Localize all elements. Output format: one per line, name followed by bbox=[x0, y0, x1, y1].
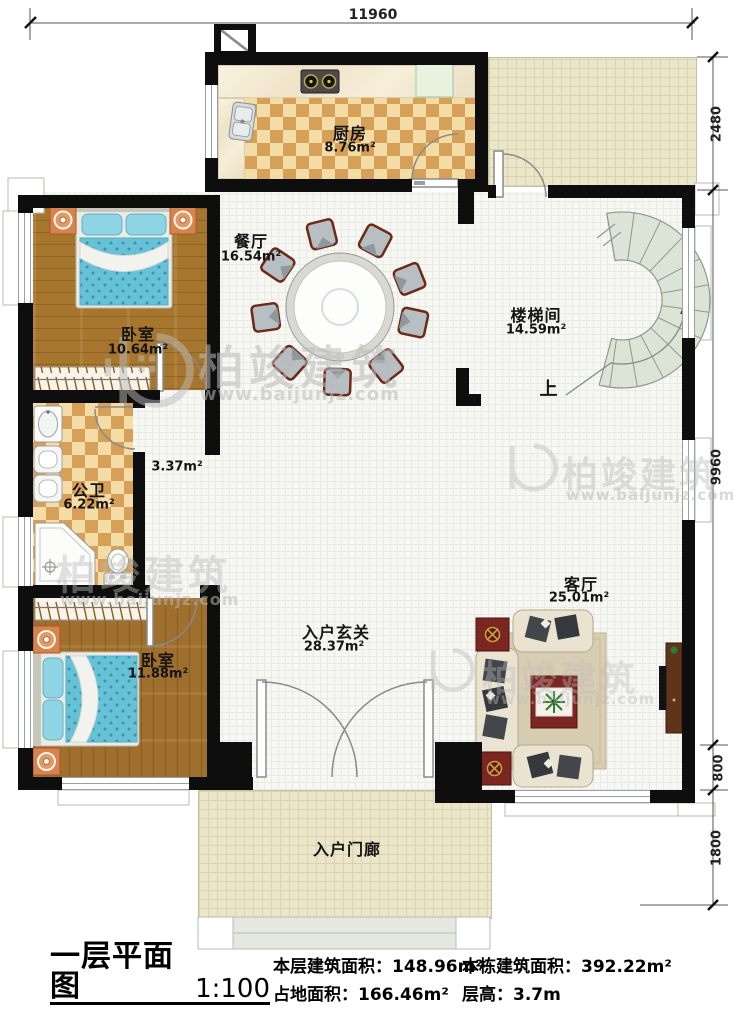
wall bbox=[475, 52, 488, 192]
porch-steps bbox=[233, 917, 456, 949]
dim-right-3: 800 bbox=[712, 754, 727, 781]
sofa-top bbox=[513, 610, 593, 652]
bathroom-cabinets bbox=[34, 446, 62, 502]
window bbox=[682, 228, 695, 338]
bedroom2-door bbox=[147, 598, 197, 646]
bathroom-sink bbox=[34, 406, 62, 442]
wall bbox=[205, 52, 218, 85]
wall bbox=[207, 195, 220, 390]
tv-cabinet bbox=[659, 643, 682, 733]
stat-floor-height: 层高：3.7m bbox=[462, 981, 672, 1009]
dim-top: 11960 bbox=[349, 7, 398, 23]
entry-double-door bbox=[257, 680, 433, 777]
living-room-set bbox=[476, 610, 682, 787]
window bbox=[18, 517, 33, 586]
stat-footprint-area: 占地面积：166.46m² bbox=[273, 981, 483, 1009]
kitchen-sink bbox=[228, 102, 256, 142]
wall bbox=[18, 777, 62, 790]
kitchen-door bbox=[410, 134, 458, 187]
room-area-bedroom1: 10.64m² bbox=[108, 343, 168, 358]
window bbox=[62, 777, 189, 790]
plan-scale: 1:100 bbox=[195, 976, 270, 1002]
chimney-flue bbox=[221, 30, 248, 51]
wall bbox=[682, 520, 695, 803]
wall bbox=[458, 179, 474, 224]
wall bbox=[205, 390, 220, 455]
stat-building-area: 本栋建筑面积：392.22m² bbox=[462, 953, 672, 981]
stat-floor-area: 本层建筑面积：148.96m² bbox=[273, 953, 483, 981]
bedroom2-bed bbox=[33, 652, 139, 746]
room-label-bedroom1: 卧室 bbox=[121, 321, 155, 345]
watermark-logo bbox=[498, 440, 558, 499]
stats-column-2: 本栋建筑面积：392.22m² 层高：3.7m bbox=[462, 953, 672, 1009]
fridge bbox=[416, 64, 453, 97]
sofa-bottom bbox=[513, 745, 593, 787]
wall bbox=[18, 195, 220, 208]
room-area-kitchen: 8.76m² bbox=[324, 141, 375, 156]
wall bbox=[207, 585, 220, 777]
wall bbox=[18, 303, 33, 517]
room-label-dining: 餐厅 bbox=[234, 228, 268, 252]
room-area-bedroom2: 11.88m² bbox=[128, 667, 188, 682]
patio-door bbox=[494, 151, 546, 197]
room-area-hallway: 3.37m² bbox=[151, 460, 202, 475]
room-area-living: 25.01m² bbox=[549, 591, 609, 606]
shower bbox=[35, 523, 95, 586]
coffee-table bbox=[531, 676, 577, 728]
wall bbox=[482, 790, 515, 803]
wall bbox=[133, 452, 145, 585]
dimension-lines bbox=[25, 8, 728, 910]
window bbox=[18, 651, 33, 748]
dim-right-4: 1800 bbox=[710, 830, 725, 866]
room-area-foyer: 28.37m² bbox=[304, 640, 364, 655]
window bbox=[682, 440, 695, 520]
wall bbox=[220, 742, 252, 777]
room-area-dining: 16.54m² bbox=[221, 250, 281, 265]
stairs-up-label: 上 bbox=[540, 375, 559, 401]
dining-table-set bbox=[251, 218, 429, 395]
wall bbox=[682, 185, 695, 228]
window bbox=[515, 790, 650, 803]
bedroom2-closet bbox=[35, 595, 150, 620]
wall bbox=[205, 179, 412, 192]
bedroom1-bed bbox=[76, 204, 172, 308]
tv bbox=[659, 666, 666, 710]
wall bbox=[18, 195, 33, 213]
wall bbox=[488, 185, 496, 198]
stats-column-1: 本层建筑面积：148.96m² 占地面积：166.46m² bbox=[273, 953, 483, 1009]
wall bbox=[205, 52, 488, 65]
title-block: 一层平面图 1:100 bbox=[50, 961, 270, 1005]
dim-right-2: 9960 bbox=[710, 449, 725, 485]
toilet bbox=[104, 549, 132, 585]
wall bbox=[682, 338, 695, 440]
dim-right-1: 2480 bbox=[710, 106, 725, 142]
wall bbox=[548, 185, 695, 198]
wall bbox=[456, 394, 481, 406]
window bbox=[205, 85, 218, 158]
wall bbox=[18, 585, 150, 598]
wall bbox=[435, 742, 482, 803]
watermark-logo bbox=[420, 645, 475, 699]
room-area-bathroom: 6.22m² bbox=[63, 498, 114, 513]
wall bbox=[189, 777, 253, 790]
floor-plan: 柏竣建筑 www.baijunjz.com 柏竣建筑 www.baijunjz.… bbox=[0, 0, 750, 1018]
window bbox=[18, 213, 33, 303]
room-label-porch: 入户门廊 bbox=[313, 836, 381, 860]
room-area-stairwell: 14.59m² bbox=[506, 323, 566, 338]
stove bbox=[301, 70, 339, 93]
plan-title: 一层平面图 bbox=[50, 942, 183, 1002]
